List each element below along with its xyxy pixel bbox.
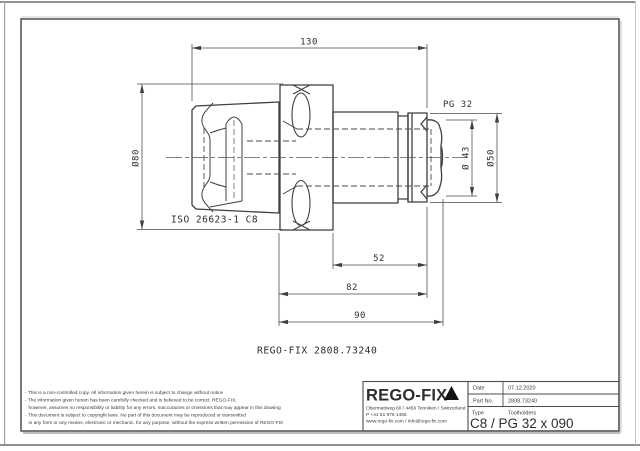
dim-82-text: 82: [346, 283, 358, 293]
part-no-label: Part No.: [473, 399, 494, 405]
page-edge-left: [4, 1, 5, 445]
frame-border: [21, 19, 619, 431]
dim-130-text: 130: [300, 38, 318, 48]
note-line-5: in any form or any means, electronic or …: [29, 420, 284, 426]
dim-d43-text: Ø 43: [461, 146, 472, 170]
page-edge-right: [635, 1, 636, 445]
interface-standard-label: ISO 26623-1 C8: [171, 215, 258, 226]
dim-90-text: 90: [354, 311, 366, 321]
dim-52-text: 52: [373, 254, 385, 264]
dim-d80-text: Ø80: [131, 149, 142, 167]
part-number-label: REGO-FIX 2808.73240: [257, 346, 377, 357]
note-line-2: - The information given herein has been …: [25, 398, 237, 404]
page-edge-bottom: [0, 444, 640, 446]
page-edge-top: [0, 1, 636, 3]
address-line-2: P +41 61 976 1466: [366, 412, 407, 418]
drawing-frame: [21, 17, 621, 433]
dim-pg32-text: PG 32: [443, 100, 473, 110]
engineering-drawing-canvas: 130 PG 32 Ø80 Ø 43 Ø50 52 82 90 ISO 2662…: [0, 0, 640, 451]
dim-d50-text: Ø50: [486, 149, 497, 167]
drawing-page: 130 PG 32 Ø80 Ø 43 Ø50 52 82 90 ISO 2662…: [0, 0, 640, 451]
address-line-1: Obermattweg 60 / 4456 Tenniken / Switzer…: [366, 406, 466, 412]
part-no-value: 2808.73240: [508, 399, 537, 405]
note-line-4: - This document is subject to copyright …: [25, 413, 246, 419]
note-line-3: however, assumes no responsibility or li…: [29, 405, 282, 411]
address-line-3: www.rego-fix.com / info@rego-fix.com: [366, 419, 447, 425]
designation-text: C8 / PG 32 x 090: [470, 416, 574, 431]
date-label: Date: [473, 386, 485, 392]
date-value: 07.12.2020: [508, 386, 536, 392]
note-line-1: - This is a non-controlled copy. All inf…: [25, 390, 224, 396]
rego-fix-logo-text: REGO-FIX: [366, 387, 447, 405]
